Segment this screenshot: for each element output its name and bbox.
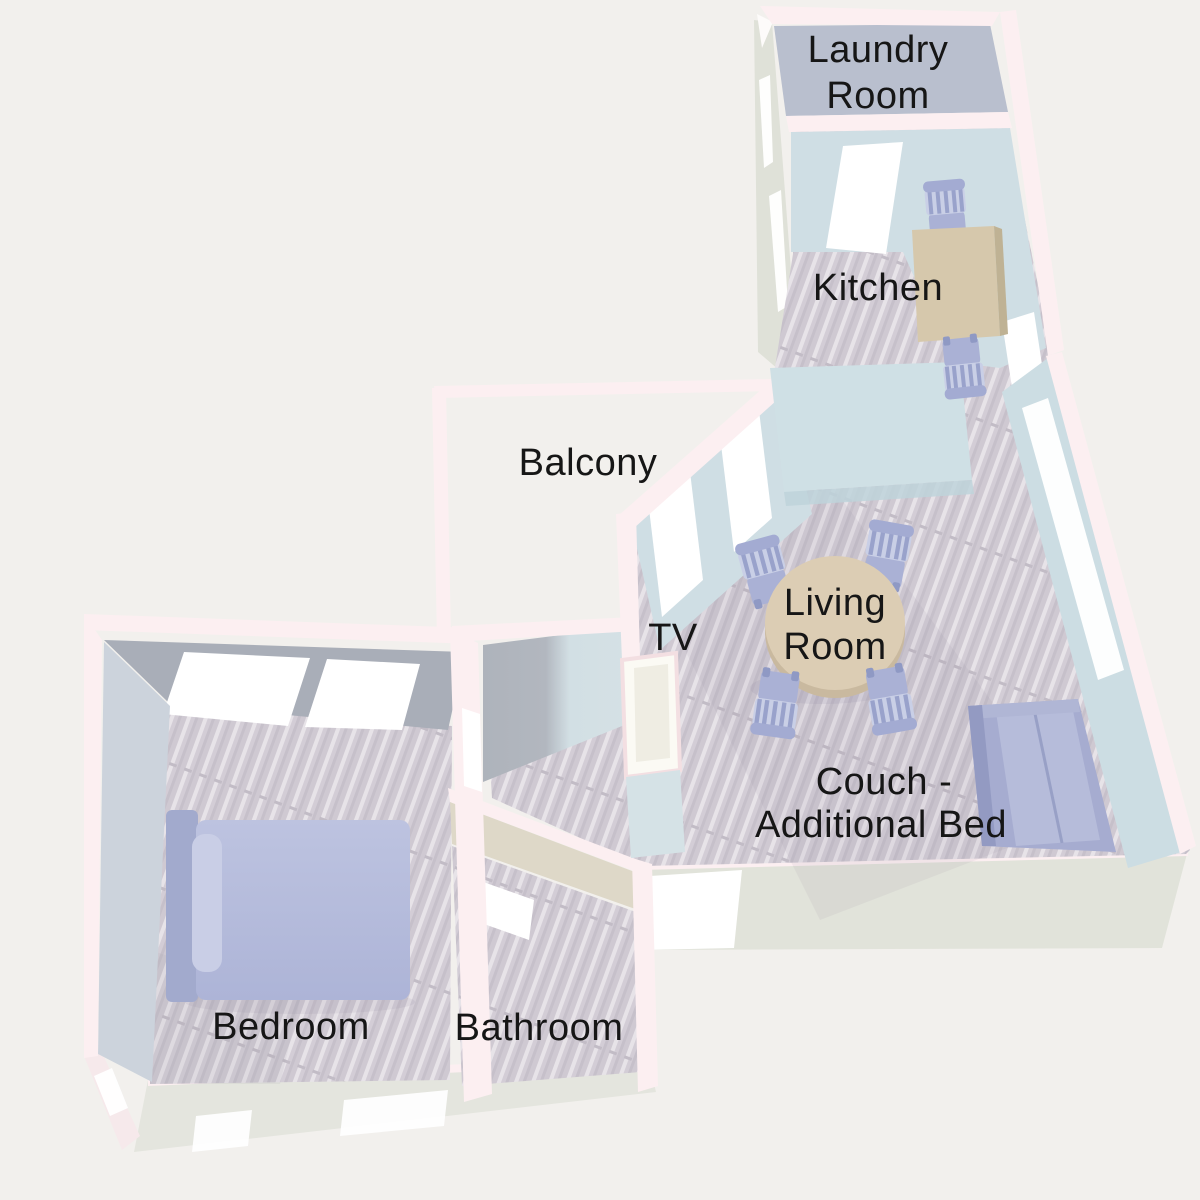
bedroom-door-icon (462, 708, 482, 792)
bedroom-window-icon (163, 652, 310, 726)
floor-plan-stage: Laundry Room Kitchen Balcony TV Living R… (0, 0, 1200, 1200)
floor-plan-svg: Laundry Room Kitchen Balcony TV Living R… (0, 0, 1200, 1200)
south-wall-window-icon (192, 1110, 252, 1152)
balcony-label: Balcony (519, 442, 658, 484)
tv-icon (634, 664, 670, 762)
bed-pillow (192, 834, 222, 972)
kitchen-label: Kitchen (813, 267, 943, 309)
kitchen-counter (770, 362, 972, 492)
tv-label: TV (648, 617, 698, 659)
laundry-room-label: Room (826, 75, 929, 117)
couch-label: Additional Bed (755, 804, 1007, 846)
laundry-room-label: Laundry (808, 29, 949, 71)
bed-mattress (196, 820, 410, 1000)
bedroom-label: Bedroom (212, 1006, 370, 1048)
living-room-label: Room (783, 626, 886, 668)
couch-label: Couch - (816, 761, 953, 803)
tv-cabinet (626, 770, 685, 858)
entrance-door-icon (644, 870, 742, 950)
living-room-label: Living (784, 582, 886, 624)
bathroom-label: Bathroom (455, 1007, 624, 1049)
